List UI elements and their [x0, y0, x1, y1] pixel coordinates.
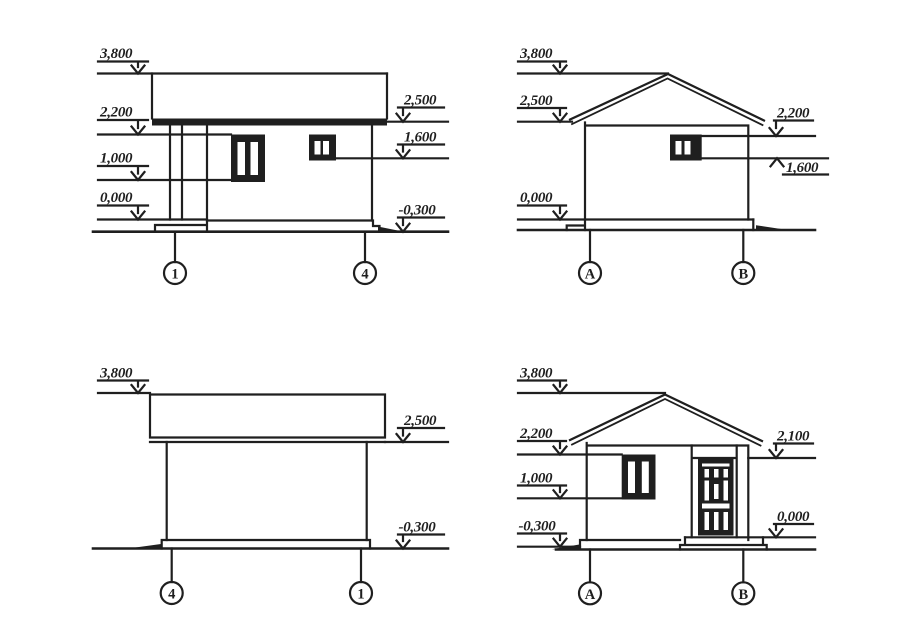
level-value: 0,000: [777, 509, 810, 525]
window-pane: [685, 141, 691, 155]
entrance-door: [692, 446, 737, 538]
door-panel-slot: [705, 512, 710, 530]
axis-label: 4: [361, 266, 368, 282]
plinth: [580, 540, 680, 549]
level-value: 2,200: [776, 106, 810, 122]
fascia-outline: [152, 74, 387, 119]
axis-leaders: [590, 230, 743, 262]
level-value: -0,300: [399, 520, 437, 536]
window-pane: [642, 462, 649, 494]
fascia-band: [152, 119, 387, 126]
wall-and-column-lines: [170, 126, 372, 221]
level-value: 3,800: [99, 366, 133, 382]
door-panel-slot: [724, 512, 729, 530]
roof-outer-line: [570, 74, 764, 121]
axis-label: 1: [171, 266, 178, 282]
elevation-gable-a-b-front: 3,800 2,200 1,000 -0,300 2,100 0,000: [518, 366, 815, 605]
level-value: 2,500: [519, 93, 553, 109]
door-mid-rail: [702, 504, 730, 509]
elevation-gable-a-b-rear: 3,800 2,500 0,000 2,200 1,600 A B: [518, 46, 828, 284]
elevation-side-1-4: 3,800 2,200 1,000 0,000 2,500 1,600 -0,3…: [93, 46, 448, 284]
door-panel-slot: [714, 484, 719, 499]
window-frame: [231, 135, 265, 183]
level-value: 2,500: [403, 93, 437, 109]
window-pane: [251, 142, 259, 175]
door-top-rail: [702, 464, 730, 467]
axis-label: A: [585, 266, 596, 282]
window-pane: [315, 141, 321, 155]
elevation-side-4-1: 3,800 2,500 -0,300 4 1: [93, 366, 448, 605]
window-small: [670, 135, 702, 161]
axis-label: B: [738, 587, 748, 603]
level-value: -0,300: [519, 519, 557, 535]
level-marks-left-lines: [98, 381, 148, 394]
door-panel-slot: [714, 512, 719, 530]
door-panel-slot: [705, 481, 710, 501]
wall-lines: [167, 442, 367, 540]
level-value: -0,300: [399, 203, 437, 219]
level-value: 2,100: [776, 429, 810, 445]
porch-steps: [680, 537, 767, 549]
level-value: 0,000: [520, 190, 553, 206]
level-value: 2,200: [99, 105, 133, 121]
level-value: 3,800: [99, 46, 133, 62]
level-value: 1,600: [786, 160, 819, 176]
level-value: 1,000: [100, 151, 133, 167]
level-value: 2,500: [403, 413, 437, 429]
axis-label: 1: [357, 587, 364, 603]
window-pane: [676, 141, 682, 155]
window: [622, 455, 656, 500]
window: [231, 135, 265, 183]
level-value: 1,000: [520, 471, 553, 487]
window-small: [309, 135, 336, 161]
window-frame: [622, 455, 656, 500]
level-value: 3,800: [519, 46, 553, 62]
level-lines-right: [702, 136, 828, 158]
door-glazing-slot: [724, 469, 729, 478]
roof-inner-line: [572, 399, 761, 446]
window-pane: [628, 462, 635, 494]
axis-leaders: [590, 550, 743, 583]
axis-leaders: [175, 232, 365, 262]
door-panel-slot: [724, 481, 729, 501]
window-pane: [238, 142, 246, 175]
plinth: [567, 220, 754, 231]
plinth: [155, 221, 380, 232]
axis-label: A: [585, 587, 596, 603]
axis-leaders: [172, 549, 361, 583]
window-pane: [323, 141, 329, 155]
level-lines-left: [518, 74, 753, 220]
level-value: 0,000: [100, 190, 133, 206]
axis-label: B: [738, 266, 748, 282]
door-glazing-slot: [714, 469, 719, 478]
fascia-outline: [150, 395, 385, 443]
roof-inner-line: [572, 79, 763, 126]
level-value: 2,200: [519, 426, 553, 442]
level-value: 3,800: [519, 366, 553, 382]
elevations-sheet: 3,800 2,200 1,000 0,000 2,500 1,600 -0,3…: [0, 0, 918, 642]
door-glazing-slot: [705, 469, 710, 478]
axis-label: 4: [168, 587, 175, 603]
roof-outer-line: [570, 395, 762, 442]
elevation-drawing-canvas: 3,800 2,200 1,000 0,000 2,500 1,600 -0,3…: [0, 0, 918, 642]
window-frame: [309, 135, 336, 161]
level-value: 1,600: [404, 130, 437, 146]
